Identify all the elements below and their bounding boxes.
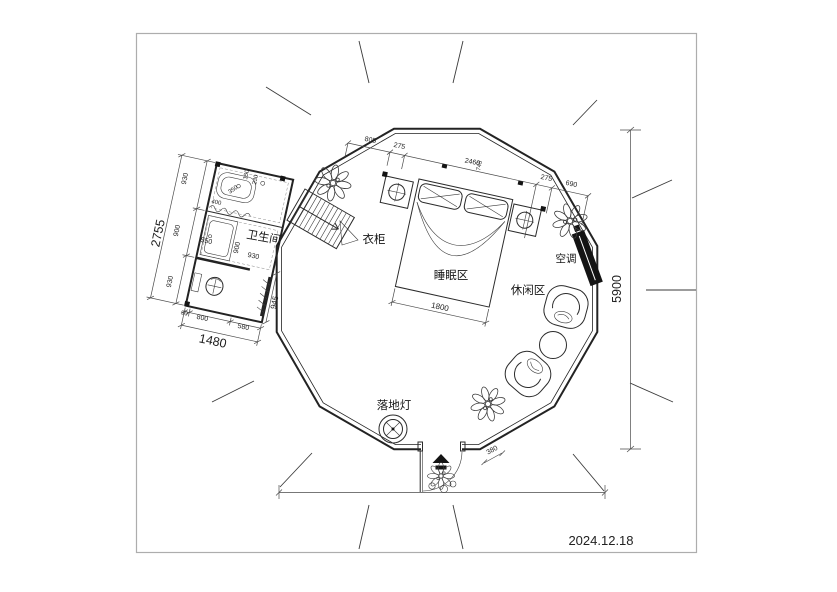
- wardrobe-label: 衣柜: [363, 232, 386, 246]
- entrance-opening: [421, 441, 462, 452]
- floor-lamp-label: 落地灯: [377, 399, 412, 412]
- floor-plan-page: 1800: [0, 0, 837, 592]
- floor-lamp-icon: [379, 415, 407, 443]
- air-conditioner-label: 空调: [556, 252, 577, 265]
- leisure-area-label: 休闲区: [511, 283, 546, 297]
- floor-plan-canvas: 1800: [0, 0, 837, 592]
- date-label: 2024.12.18: [568, 533, 633, 548]
- dim-right-5900: 5900: [610, 275, 624, 303]
- sleeping-area-label: 睡眠区: [434, 269, 469, 282]
